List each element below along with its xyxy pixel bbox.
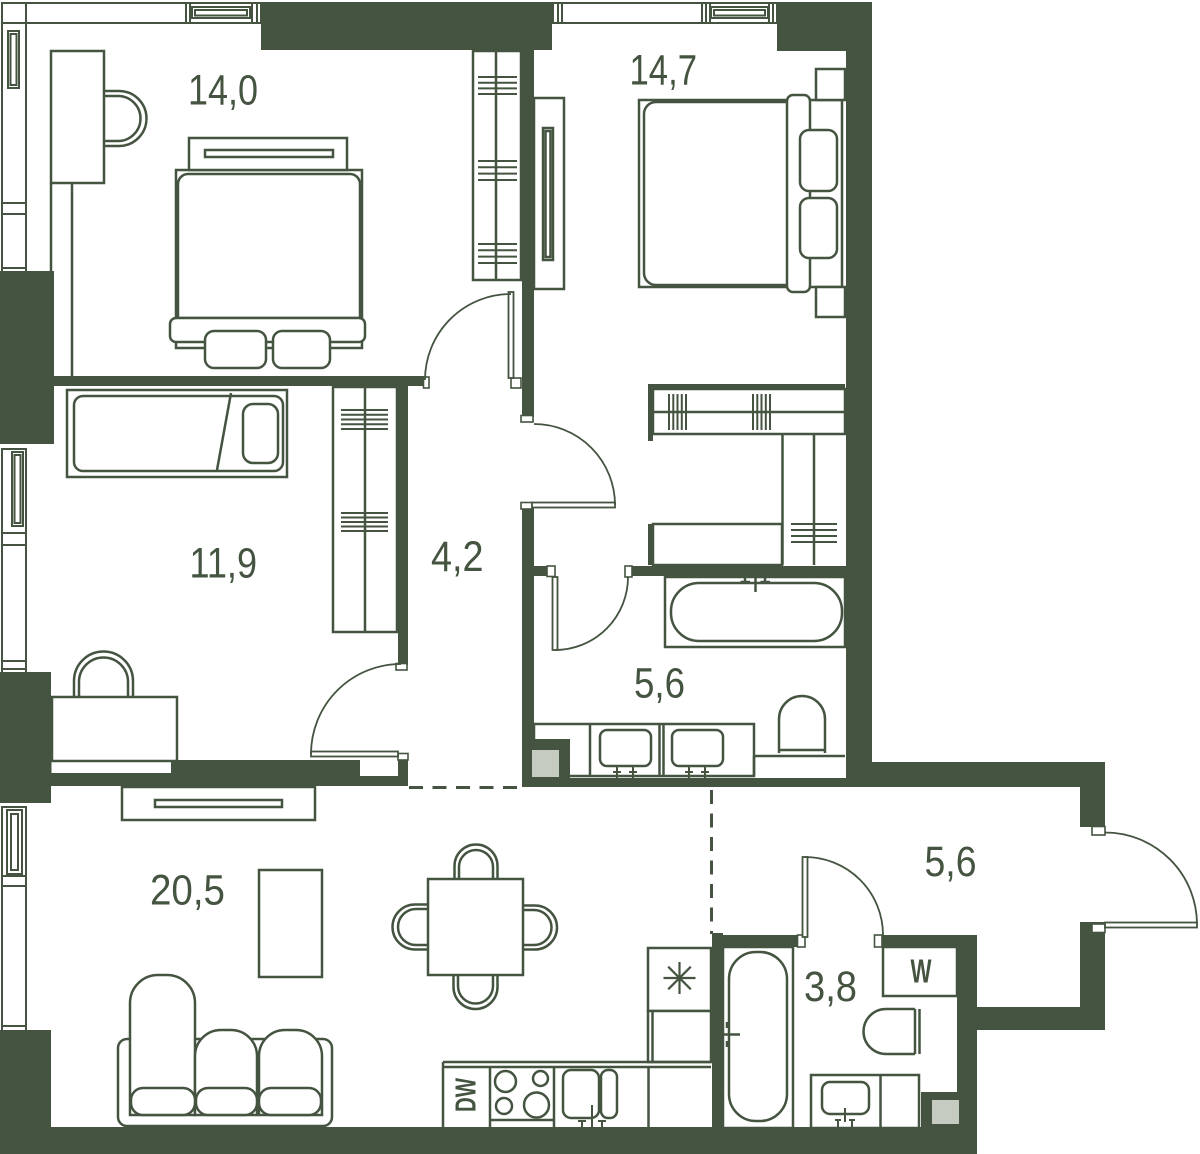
svg-text:4,2: 4,2 bbox=[431, 533, 484, 581]
svg-text:14,0: 14,0 bbox=[188, 67, 258, 115]
svg-text:11,9: 11,9 bbox=[190, 540, 258, 588]
svg-text:14,7: 14,7 bbox=[630, 47, 698, 95]
svg-text:3,8: 3,8 bbox=[804, 963, 857, 1011]
svg-text:DW: DW bbox=[451, 1078, 483, 1112]
svg-text:5,6: 5,6 bbox=[925, 838, 977, 886]
svg-text:20,5: 20,5 bbox=[150, 867, 225, 915]
svg-text:W: W bbox=[911, 953, 933, 990]
svg-text:5,6: 5,6 bbox=[634, 660, 685, 708]
